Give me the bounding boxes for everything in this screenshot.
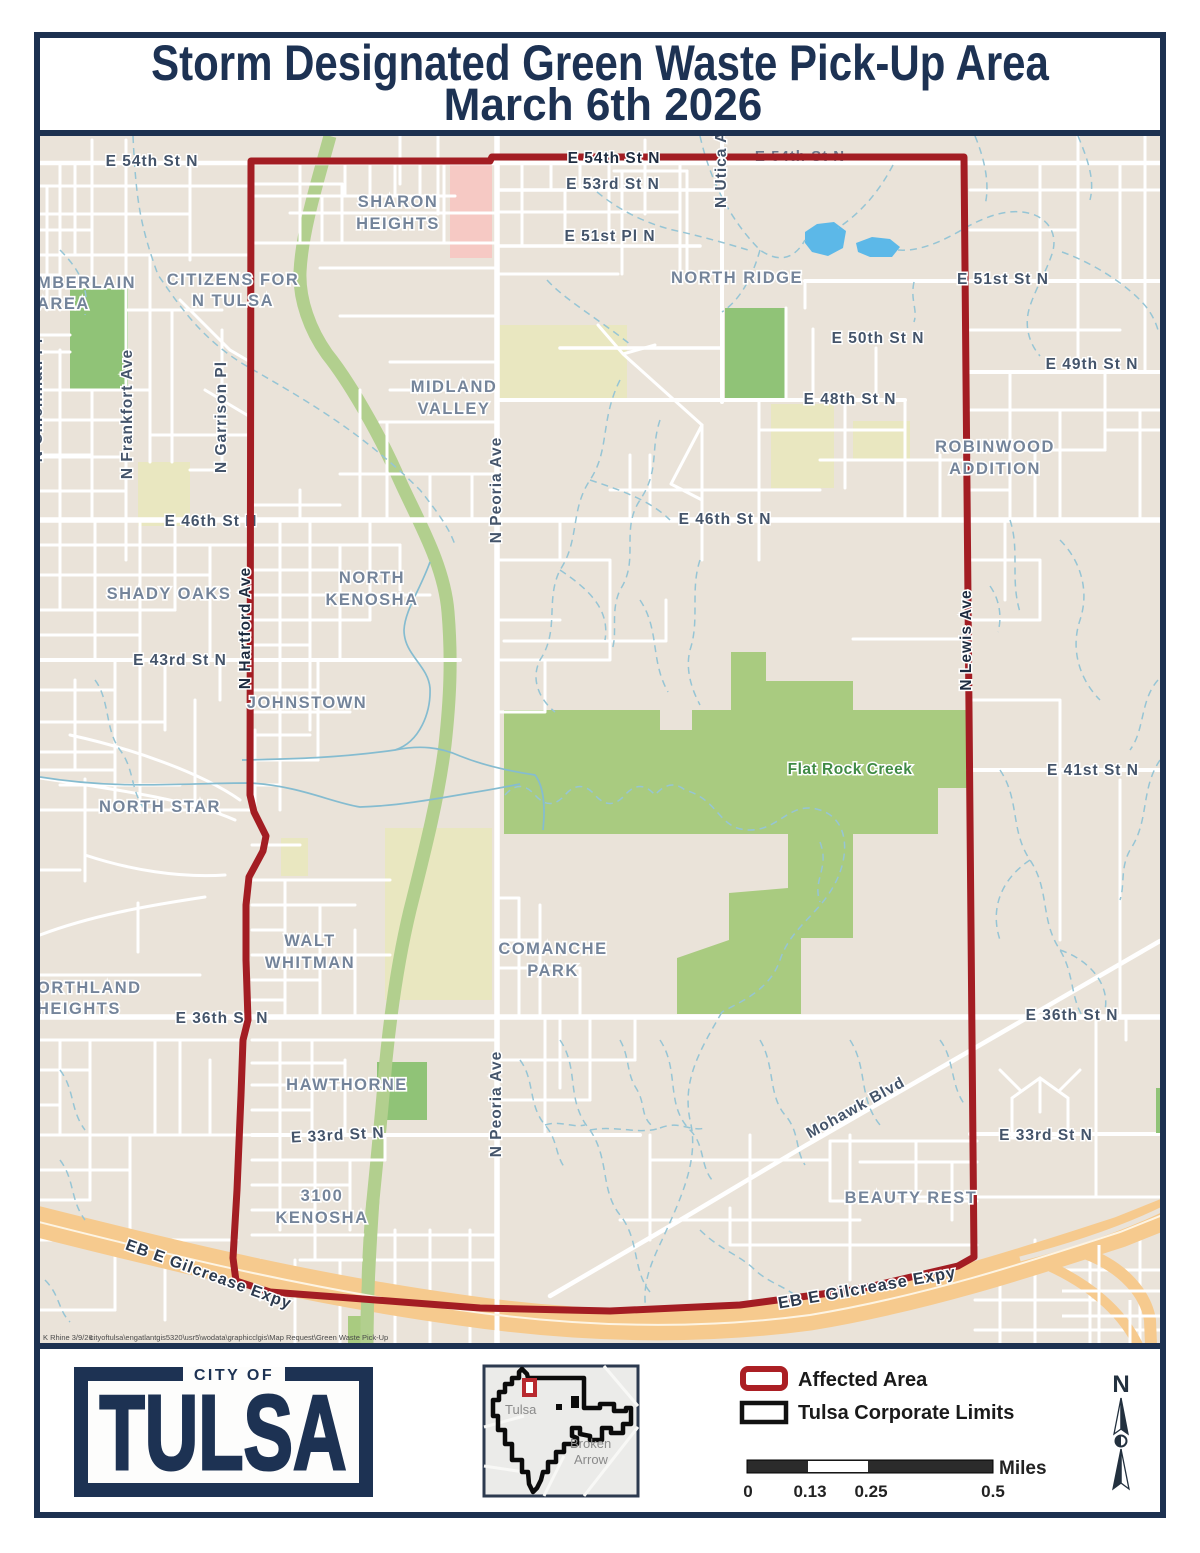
svg-text:MBERLAIN: MBERLAIN xyxy=(40,274,136,292)
svg-text:Miles: Miles xyxy=(999,1458,1047,1479)
svg-text:E 43rd St N: E 43rd St N xyxy=(133,652,227,669)
svg-text:K Rhine 3/9/26: K Rhine 3/9/26 xyxy=(43,1333,93,1342)
svg-text:N Garrison Pl: N Garrison Pl xyxy=(213,361,230,473)
svg-text:Tulsa: Tulsa xyxy=(505,1402,537,1417)
svg-text:E 54th St N: E 54th St N xyxy=(568,150,661,167)
svg-text:E 46th St N: E 46th St N xyxy=(679,511,772,528)
svg-text:JOHNSTOWN: JOHNSTOWN xyxy=(247,694,367,712)
svg-text:HAWTHORNE: HAWTHORNE xyxy=(286,1076,408,1094)
svg-text:KENOSHA: KENOSHA xyxy=(325,591,418,609)
svg-text:N TULSA: N TULSA xyxy=(192,292,274,310)
svg-text:Arrow: Arrow xyxy=(574,1452,609,1467)
svg-text:E 36th St N: E 36th St N xyxy=(1026,1007,1119,1024)
svg-text:N Lewis Ave: N Lewis Ave xyxy=(958,589,975,690)
svg-text:VALLEY: VALLEY xyxy=(418,400,491,418)
svg-text:0.13: 0.13 xyxy=(793,1482,826,1501)
svg-text:Flat Rock Creek: Flat Rock Creek xyxy=(788,761,913,778)
svg-text:WALT: WALT xyxy=(284,932,336,950)
svg-text:BEAUTY REST: BEAUTY REST xyxy=(845,1189,978,1207)
svg-text:Broken: Broken xyxy=(570,1436,611,1451)
svg-text:N Peoria Ave: N Peoria Ave xyxy=(488,1051,505,1157)
svg-text:0.25: 0.25 xyxy=(854,1482,887,1501)
svg-text:N: N xyxy=(1112,1371,1129,1398)
svg-text:TULSA: TULSA xyxy=(100,1374,347,1492)
svg-text:E 51st St N: E 51st St N xyxy=(957,271,1049,288)
svg-text:E 33rd St N: E 33rd St N xyxy=(999,1127,1093,1144)
svg-text:N Peoria Ave: N Peoria Ave xyxy=(488,437,505,543)
svg-text:KENOSHA: KENOSHA xyxy=(275,1209,368,1227)
svg-text:N Frankfort Ave: N Frankfort Ave xyxy=(119,349,136,479)
svg-text:NORTH STAR: NORTH STAR xyxy=(99,798,221,816)
svg-text:E 50th St N: E 50th St N xyxy=(832,330,925,347)
svg-text:N Cincinnati Pl: N Cincinnati Pl xyxy=(40,338,46,462)
svg-text:COMANCHE: COMANCHE xyxy=(498,940,607,958)
svg-text:E 49th St N: E 49th St N xyxy=(1046,356,1139,373)
svg-text:E 54th St N: E 54th St N xyxy=(106,153,199,170)
svg-text:Affected Area: Affected Area xyxy=(798,1369,928,1391)
svg-text:E 48th St N: E 48th St N xyxy=(804,391,897,408)
svg-text:PARK: PARK xyxy=(527,962,579,980)
svg-text:ORTHLAND: ORTHLAND xyxy=(40,979,142,997)
svg-text:N Hartford Ave: N Hartford Ave xyxy=(237,567,254,689)
svg-text:E 36th St N: E 36th St N xyxy=(176,1010,269,1027)
svg-text:0.5: 0.5 xyxy=(981,1482,1005,1501)
svg-text:WHITMAN: WHITMAN xyxy=(265,954,355,972)
svg-text:NORTH: NORTH xyxy=(339,569,405,587)
svg-text:E 53rd St N: E 53rd St N xyxy=(566,176,660,193)
svg-text:0: 0 xyxy=(743,1482,752,1501)
svg-text:E 46th St N: E 46th St N xyxy=(165,513,258,530)
svg-text:CITIZENS FOR: CITIZENS FOR xyxy=(167,271,300,289)
svg-text:cityoftulsa\engatlantgis5320\u: cityoftulsa\engatlantgis5320\usr5\wodata… xyxy=(90,1333,388,1342)
svg-text:ADDITION: ADDITION xyxy=(949,460,1041,478)
svg-text:HEIGHTS: HEIGHTS xyxy=(356,215,440,233)
svg-text:Tulsa Corporate Limits: Tulsa Corporate Limits xyxy=(798,1402,1014,1424)
svg-text:N Utica Ave: N Utica Ave xyxy=(713,136,730,208)
svg-text:MIDLAND: MIDLAND xyxy=(411,378,498,396)
svg-text:NORTH RIDGE: NORTH RIDGE xyxy=(671,269,803,287)
svg-text:3100: 3100 xyxy=(301,1187,344,1205)
svg-text:E 41st St N: E 41st St N xyxy=(1047,762,1139,779)
svg-text:SHADY OAKS: SHADY OAKS xyxy=(107,585,232,603)
svg-text:HEIGHTS: HEIGHTS xyxy=(40,1000,121,1018)
svg-text:AREA: AREA xyxy=(40,295,90,313)
svg-text:ROBINWOOD: ROBINWOOD xyxy=(935,438,1055,456)
svg-text:SHARON: SHARON xyxy=(358,193,439,211)
svg-text:E 51st Pl N: E 51st Pl N xyxy=(564,228,655,245)
